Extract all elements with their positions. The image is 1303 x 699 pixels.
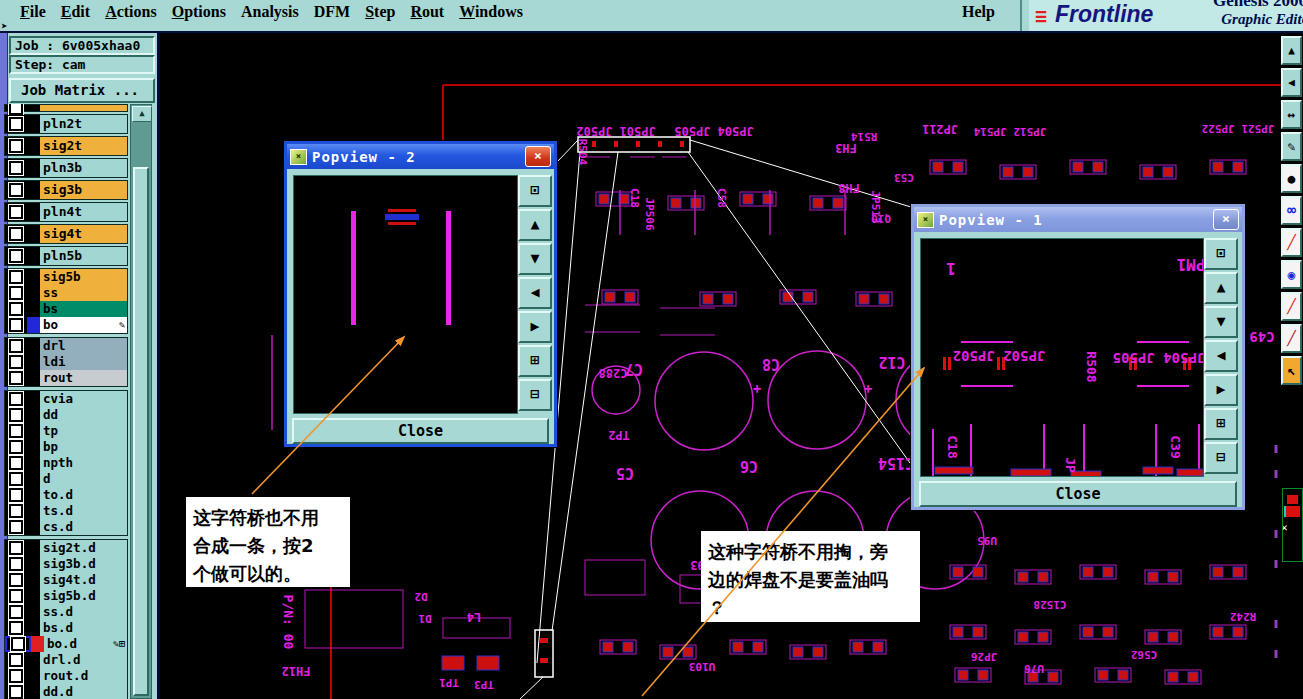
layer-name[interactable]: tp — [40, 423, 127, 439]
svg-text:FH8: FH8 — [838, 181, 860, 195]
layer-row-ss[interactable]: ss — [5, 285, 127, 301]
pan-right-icon[interactable]: ▶ — [518, 311, 552, 343]
layer-color-chip[interactable] — [27, 301, 40, 317]
layer-group: cviaddtpbpnpthdto.dts.dcs.d — [4, 390, 128, 536]
select-cursor-icon[interactable]: ↖ — [1281, 356, 1302, 385]
layer-color-chip[interactable] — [27, 391, 40, 407]
layer-checkbox[interactable] — [9, 392, 23, 406]
svg-text:C53: C53 — [894, 171, 914, 184]
frontline-logo: Frontline — [1055, 1, 1153, 28]
layer-row-bs.d[interactable]: bs.d — [5, 620, 127, 636]
layer-group: sig4t — [4, 224, 128, 244]
svg-text:JP211: JP211 — [922, 122, 958, 136]
layer-name[interactable]: sig5b — [40, 269, 127, 285]
layer-checkbox[interactable] — [9, 139, 23, 153]
svg-text:R242: R242 — [1230, 610, 1257, 623]
zoom-out-icon[interactable]: ⊟ — [518, 379, 552, 411]
measure-pen-icon[interactable]: ✎ — [1281, 132, 1302, 161]
right-toolbar: ✕ ▲◀↔✎●∞╱◉╱╱↖ — [1281, 33, 1303, 699]
layer-row-ldi[interactable]: ldi — [5, 354, 127, 370]
svg-text:C18: C18 — [628, 188, 641, 208]
popview-1-canvas[interactable]: 1PM1JP502 JP502JP504 JP505R508C18JPC39 — [920, 238, 1204, 477]
layer-checkbox[interactable] — [9, 270, 23, 284]
layer-color-chip[interactable] — [27, 370, 40, 386]
layer-color-chip[interactable] — [27, 588, 40, 604]
layer-checkbox[interactable] — [9, 653, 23, 667]
product-tagline: Graphic Editor — [1221, 11, 1303, 28]
frontline-stripes-icon: ≡ — [1035, 4, 1045, 28]
layer-row-bo.d[interactable]: bo.d✎⊞ — [5, 636, 127, 652]
menu-rout[interactable]: Rout — [410, 3, 444, 21]
layer-checkbox[interactable] — [9, 302, 23, 316]
layer-name[interactable]: sig2t — [40, 137, 127, 155]
layer-checkbox[interactable] — [9, 557, 23, 571]
menu-bar: FileEditActionsOptionsAnalysisDFMStepRou… — [0, 0, 1303, 33]
layer-color-chip[interactable] — [27, 556, 40, 572]
svg-text:C39: C39 — [1168, 435, 1183, 458]
svg-text:C6: C6 — [740, 457, 758, 475]
layer-row-dd.d[interactable]: dd.d — [5, 684, 127, 699]
layer-row-bs[interactable]: bs — [5, 301, 127, 317]
annotation-note-2: 这种字符桥不用掏，旁 边的焊盘不是要盖油吗 ？ — [701, 531, 920, 622]
layer-group: sig2t — [4, 136, 128, 156]
svg-text:U95: U95 — [977, 534, 997, 547]
popview-1-window: × Popview - 1 × 1PM1JP502 JP502JP504 JP5… — [911, 204, 1245, 510]
layer-color-chip[interactable] — [27, 247, 40, 265]
layer-name[interactable]: bo.d✎⊞ — [44, 636, 127, 652]
layer-checkbox[interactable] — [9, 605, 23, 619]
menu-items: FileEditActionsOptionsAnalysisDFMStepRou… — [20, 3, 523, 21]
svg-text:TP2: TP2 — [608, 428, 630, 442]
svg-text:P/N: 00: P/N: 00 — [281, 595, 296, 650]
layer-color-chip[interactable] — [27, 225, 40, 243]
layer-color-chip[interactable] — [27, 203, 40, 221]
red-line-icon[interactable]: ╱ — [1281, 292, 1302, 321]
svg-text:JP521 JP522: JP521 JP522 — [1202, 122, 1275, 135]
layer-group: sig3b — [4, 180, 128, 200]
svg-text:L4: L4 — [467, 610, 481, 624]
layer-checkbox[interactable] — [9, 488, 23, 502]
filled-circle-icon[interactable]: ● — [1281, 164, 1302, 193]
layer-work-icon: ✎⊞ — [113, 636, 125, 652]
layer-row-pln4t[interactable]: pln4t — [5, 203, 127, 221]
zoom-in-icon[interactable]: ⊞ — [1204, 408, 1238, 440]
layer-row-sig5b[interactable]: sig5b — [5, 269, 127, 285]
layer-row-cs.d[interactable]: cs.d — [5, 519, 127, 535]
layer-color-chip[interactable] — [27, 503, 40, 519]
svg-text:C49: C49 — [1249, 329, 1274, 345]
layer-name[interactable]: drl — [40, 338, 127, 354]
layer-checkbox[interactable] — [9, 161, 23, 175]
layer-color-chip[interactable] — [27, 604, 40, 620]
svg-text:U76: U76 — [1024, 662, 1044, 675]
pan-up-icon[interactable]: ▲ — [1281, 36, 1302, 65]
close-icon[interactable]: × — [525, 146, 551, 167]
layer-checkbox[interactable] — [9, 669, 23, 683]
layer-color-chip[interactable] — [27, 439, 40, 455]
svg-text:TP3: TP3 — [474, 678, 494, 691]
annotation-note-1: 这字符桥也不用 合成一条，按2 个做可以的。 — [186, 497, 350, 587]
layer-name[interactable]: to.d — [40, 487, 127, 503]
svg-text:C12: C12 — [878, 353, 905, 371]
scroll-up-icon[interactable]: ▲ — [132, 106, 152, 122]
pan-down-icon[interactable]: ▼ — [518, 243, 552, 275]
layer-list: pln2tsig2tpln3bsig3bpln4tsig4tpln5bsig5b… — [4, 104, 128, 699]
layer-color-chip[interactable] — [27, 668, 40, 684]
popview-2-canvas[interactable] — [293, 175, 518, 414]
menu-actions[interactable]: Actions — [105, 3, 157, 21]
layer-row-ss.d[interactable]: ss.d — [5, 604, 127, 620]
layer-name[interactable]: sig2t.d — [40, 540, 127, 556]
svg-text:C8: C8 — [762, 355, 780, 373]
layer-checkbox[interactable] — [9, 117, 23, 131]
layer-group: sig2t.dsig3b.dsig4t.dsig5b.dss.dbs.dbo.d… — [4, 539, 128, 699]
layer-checkbox[interactable] — [9, 424, 23, 438]
red-blue-line-icon[interactable]: ╱ — [1281, 324, 1302, 353]
layer-color-chip[interactable] — [27, 338, 40, 354]
menu-windows[interactable]: Windows — [459, 3, 523, 21]
svg-text:+: + — [864, 381, 872, 397]
popview-2-titlebar[interactable]: × Popview - 2 × — [287, 144, 554, 169]
menu-step[interactable]: Step — [365, 3, 395, 21]
layer-group: pln3b — [4, 158, 128, 178]
layer-name[interactable]: cvia — [40, 391, 127, 407]
svg-text:C154: C154 — [878, 454, 914, 472]
pan-right-icon[interactable]: ▶ — [1204, 374, 1238, 406]
symbol-preview-panel: ✕ — [1282, 488, 1303, 562]
layer-name[interactable]: pln5b — [40, 247, 127, 265]
open-popview-icon[interactable]: ⊡ — [518, 175, 552, 207]
layer-group: pln4t — [4, 202, 128, 222]
layer-name[interactable]: bs — [40, 301, 127, 317]
layer-scrollbar[interactable]: ▲ — [130, 104, 152, 699]
layer-checkbox[interactable] — [9, 318, 23, 332]
svg-text:C5: C5 — [616, 464, 634, 482]
layer-color-chip[interactable] — [27, 115, 40, 133]
layer-row-partial[interactable] — [5, 105, 127, 111]
genesis-cam-application: JP501 JP502JP504 JP505R504JP211JP512 JP5… — [0, 0, 1303, 699]
svg-text:JP501 JP502: JP501 JP502 — [576, 124, 655, 138]
svg-text:JP: JP — [1063, 457, 1078, 473]
layer-checkbox[interactable] — [9, 541, 23, 555]
layer-row-rout.d[interactable]: rout.d — [5, 668, 127, 684]
layer-row-sig5b.d[interactable]: sig5b.d — [5, 588, 127, 604]
svg-text:C7: C7 — [625, 360, 643, 378]
layer-group: drlldirout — [4, 337, 128, 387]
layer-row-drl.d[interactable]: drl.d — [5, 652, 127, 668]
menu-analysis[interactable]: Analysis — [241, 3, 299, 21]
svg-text:1: 1 — [946, 259, 956, 278]
layer-color-chip[interactable] — [27, 105, 40, 111]
svg-text:R508: R508 — [1084, 351, 1099, 382]
svg-text:JP502 JP502: JP502 JP502 — [953, 348, 1046, 364]
layer-checkbox[interactable] — [9, 685, 23, 699]
layer-checkbox[interactable] — [9, 589, 23, 603]
layer-checkbox[interactable] — [9, 472, 23, 486]
svg-text:PM1: PM1 — [1177, 255, 1204, 274]
layer-checkbox[interactable] — [9, 249, 23, 263]
svg-text:JP504 JP505: JP504 JP505 — [674, 124, 753, 138]
layer-checkbox[interactable] — [9, 408, 23, 422]
layer-row-sig2t[interactable]: sig2t — [5, 137, 127, 155]
layer-name[interactable]: pln4t — [40, 203, 127, 221]
layer-color-chip[interactable] — [27, 407, 40, 423]
layer-checkbox[interactable] — [9, 371, 23, 385]
zoom-in-icon[interactable]: ⊞ — [518, 345, 552, 377]
job-matrix-button[interactable]: Job Matrix ... — [9, 78, 155, 103]
layer-row-dd[interactable]: dd — [5, 407, 127, 423]
svg-text:JP504 JP505: JP504 JP505 — [1113, 350, 1204, 366]
svg-text:FH3: FH3 — [835, 141, 857, 155]
pan-left-icon[interactable]: ◀ — [518, 277, 552, 309]
layer-checkbox[interactable] — [9, 183, 23, 197]
menu-file[interactable]: File — [20, 3, 46, 21]
layer-color-chip[interactable] — [27, 317, 40, 333]
layer-row-rout[interactable]: rout — [5, 370, 127, 386]
layer-row-sig4t.d[interactable]: sig4t.d — [5, 572, 127, 588]
svg-text:JP506: JP506 — [643, 197, 656, 230]
layer-color-chip[interactable] — [27, 652, 40, 668]
pan-up-icon[interactable]: ▲ — [518, 209, 552, 241]
window-icon: × — [290, 149, 307, 165]
popview-1-title: Popview - 1 — [939, 212, 1213, 228]
close-icon[interactable]: × — [1213, 209, 1239, 230]
layer-name[interactable]: rout.d — [40, 668, 127, 684]
layer-checkbox[interactable] — [9, 355, 23, 369]
layer-name[interactable]: pln2t — [40, 115, 127, 133]
svg-text:Q10: Q10 — [871, 212, 891, 225]
svg-text:C58: C58 — [715, 188, 728, 208]
layer-group — [4, 104, 128, 112]
layer-color-chip[interactable] — [27, 354, 40, 370]
layer-name[interactable]: sig3b — [40, 181, 127, 199]
pan-left-icon[interactable]: ◀ — [1204, 340, 1238, 372]
layer-row-bo[interactable]: bo✎ — [5, 317, 127, 333]
layer-name[interactable]: cs.d — [40, 519, 127, 535]
layer-name[interactable]: drl.d — [40, 652, 127, 668]
layer-row-sig2t.d[interactable]: sig2t.d — [5, 540, 127, 556]
layer-name[interactable]: sig3b.d — [40, 556, 127, 572]
job-field: Job : 6v005xhaa0 — [9, 36, 155, 55]
layer-color-chip[interactable] — [27, 269, 40, 285]
layer-group: sig5bssbsbo✎ — [4, 268, 128, 334]
layer-checkbox[interactable] — [9, 504, 23, 518]
layer-row-pln3b[interactable]: pln3b — [5, 159, 127, 177]
popview-2-title: Popview - 2 — [312, 149, 525, 165]
open-popview-icon[interactable]: ⊡ — [1204, 238, 1238, 270]
layer-checkbox[interactable] — [9, 104, 23, 115]
layer-checkbox[interactable] — [9, 205, 23, 219]
pointer-arrow-icon: ➤ — [1, 20, 8, 33]
layer-checkbox[interactable] — [9, 227, 23, 241]
layer-group: pln5b — [4, 246, 128, 266]
popview-1-close-button[interactable]: Close — [919, 481, 1237, 507]
layer-checkbox[interactable] — [9, 339, 23, 353]
zoom-out-icon[interactable]: ⊟ — [1204, 442, 1238, 474]
popview-1-button-column: ⊡▲▼◀▶⊞⊟ — [1204, 238, 1239, 476]
zoom-highlight-top — [578, 137, 690, 157]
layer-row-pln5b[interactable]: pln5b — [5, 247, 127, 265]
layer-checkbox[interactable] — [9, 286, 23, 300]
layer-color-chip[interactable] — [27, 285, 40, 301]
popview-1-labels: 1PM1JP502 JP502JP504 JP505R508C18JPC39 — [945, 255, 1204, 473]
layer-color-chip[interactable] — [31, 636, 44, 652]
layer-color-chip[interactable] — [27, 159, 40, 177]
layer-color-chip[interactable] — [27, 137, 40, 155]
popview-2-window: × Popview - 2 × ⊡▲▼◀▶⊞⊟ Close — [284, 141, 557, 447]
layer-color-chip[interactable] — [27, 471, 40, 487]
layer-name[interactable]: npth — [40, 455, 127, 471]
layer-name[interactable]: ldi — [40, 354, 127, 370]
layer-name[interactable]: dd.d — [40, 684, 127, 699]
scrollbar-thumb[interactable] — [133, 167, 149, 696]
svg-text:U103: U103 — [689, 660, 716, 673]
net-dumbbell-icon[interactable]: ∞ — [1281, 196, 1302, 225]
layer-color-chip[interactable] — [27, 540, 40, 556]
layer-row-sig4t[interactable]: sig4t — [5, 225, 127, 243]
layer-color-chip[interactable] — [27, 455, 40, 471]
brand-panel: ≡ Frontline Genesis 2000 Graphic Editor — [1029, 0, 1303, 33]
red-line-icon[interactable]: ╱ — [1281, 228, 1302, 257]
svg-text:FH12: FH12 — [282, 664, 311, 678]
menu-help[interactable]: Help — [962, 3, 995, 21]
product-name: Genesis 2000 — [1213, 0, 1303, 11]
layer-name[interactable]: ss — [40, 285, 127, 301]
svg-text:TP1: TP1 — [439, 676, 459, 689]
svg-text:R504: R504 — [576, 139, 589, 166]
pan-left-icon[interactable]: ◀ — [1281, 68, 1302, 97]
layer-name[interactable]: rout — [40, 370, 127, 386]
layer-name[interactable]: bp — [40, 439, 127, 455]
layer-row-cvia[interactable]: cvia — [5, 391, 127, 407]
layer-color-chip[interactable] — [27, 684, 40, 699]
layer-checkbox[interactable] — [9, 440, 23, 454]
popview-2-button-column: ⊡▲▼◀▶⊞⊟ — [518, 175, 553, 413]
layer-row-npth[interactable]: npth — [5, 455, 127, 471]
layer-name[interactable]: sig5b.d — [40, 588, 127, 604]
layer-group: pln2t — [4, 114, 128, 134]
layer-color-chip[interactable] — [27, 519, 40, 535]
layer-name[interactable]: bo✎ — [40, 317, 127, 333]
layer-name[interactable]: dd — [40, 407, 127, 423]
layer-row-tp[interactable]: tp — [5, 423, 127, 439]
layer-checkbox[interactable] — [9, 456, 23, 470]
layer-name[interactable]: bs.d — [40, 620, 127, 636]
layer-work-icon: ✎ — [119, 317, 125, 333]
pan-up-icon[interactable]: ▲ — [1204, 272, 1238, 304]
layer-checkbox[interactable] — [9, 573, 23, 587]
pad-select-icon[interactable]: ◉ — [1281, 260, 1302, 289]
layer-row-bp[interactable]: bp — [5, 439, 127, 455]
popview-1-titlebar[interactable]: × Popview - 1 × — [914, 207, 1242, 232]
pan-horizontal-icon[interactable]: ↔ — [1281, 100, 1302, 129]
svg-text:JP26: JP26 — [970, 650, 997, 663]
layer-name[interactable]: ts.d — [40, 503, 127, 519]
svg-text:C18: C18 — [945, 435, 960, 459]
svg-text:D1: D1 — [418, 612, 432, 625]
layer-row-sig3b[interactable]: sig3b — [5, 181, 127, 199]
layer-row-ts.d[interactable]: ts.d — [5, 503, 127, 519]
svg-text:D2: D2 — [414, 590, 427, 603]
popview-2-close-button[interactable]: Close — [292, 418, 549, 444]
step-field: Step: cam — [9, 55, 155, 74]
layer-row-d[interactable]: d — [5, 471, 127, 487]
layer-row-to.d[interactable]: to.d — [5, 487, 127, 503]
window-icon: × — [917, 212, 934, 228]
layer-color-chip[interactable] — [27, 572, 40, 588]
svg-text:C562: C562 — [1131, 648, 1158, 661]
layer-name[interactable] — [40, 105, 127, 111]
layer-row-sig3b.d[interactable]: sig3b.d — [5, 556, 127, 572]
layer-checkbox[interactable] — [11, 637, 25, 651]
layer-name[interactable]: pln3b — [40, 159, 127, 177]
layer-checkbox[interactable] — [9, 621, 23, 635]
layer-name[interactable]: sig4t — [40, 225, 127, 243]
menu-dfm[interactable]: DFM — [314, 3, 350, 21]
svg-text:JP512 JP514: JP512 JP514 — [973, 125, 1046, 138]
svg-text:C1528: C1528 — [1033, 598, 1066, 611]
pan-down-icon[interactable]: ▼ — [1204, 306, 1238, 338]
layer-name[interactable]: sig4t.d — [40, 572, 127, 588]
layer-name[interactable]: d — [40, 471, 127, 487]
layer-row-pln2t[interactable]: pln2t — [5, 115, 127, 133]
layer-checkbox[interactable] — [9, 520, 23, 534]
layer-sidebar: Job : 6v005xhaa0 Step: cam Job Matrix ..… — [0, 33, 160, 699]
layer-color-chip[interactable] — [27, 181, 40, 199]
menu-edit[interactable]: Edit — [61, 3, 90, 21]
svg-text:C288: C288 — [599, 366, 628, 380]
menu-options[interactable]: Options — [172, 3, 226, 21]
layer-color-chip[interactable] — [27, 487, 40, 503]
layer-row-drl[interactable]: drl — [5, 338, 127, 354]
layer-name[interactable]: ss.d — [40, 604, 127, 620]
svg-text:+: + — [753, 381, 761, 397]
layer-color-chip[interactable] — [27, 423, 40, 439]
layer-color-chip[interactable] — [27, 620, 40, 636]
